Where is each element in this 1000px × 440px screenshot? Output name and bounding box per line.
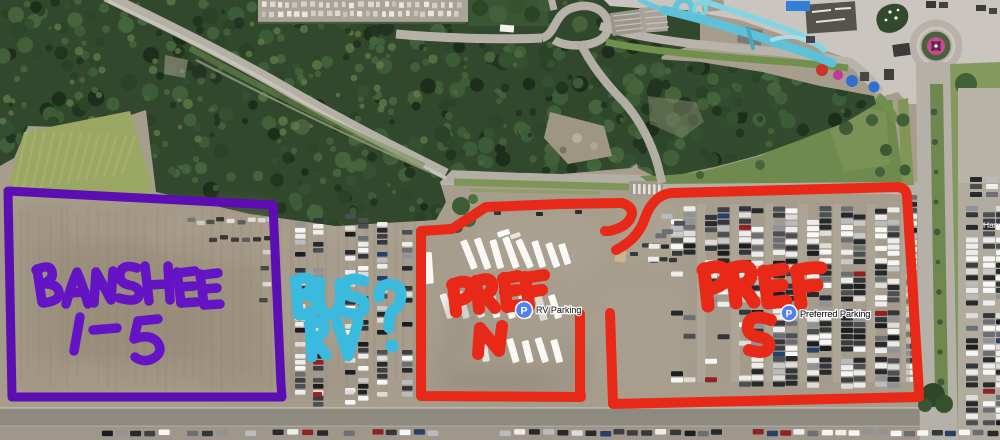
svg-text:P: P: [520, 305, 527, 317]
svg-text:Preferred Parking: Preferred Parking: [800, 309, 870, 319]
svg-text:Hann: Hann: [983, 220, 1000, 230]
svg-text:RV Parking: RV Parking: [536, 305, 581, 315]
svg-text:P: P: [786, 309, 793, 320]
